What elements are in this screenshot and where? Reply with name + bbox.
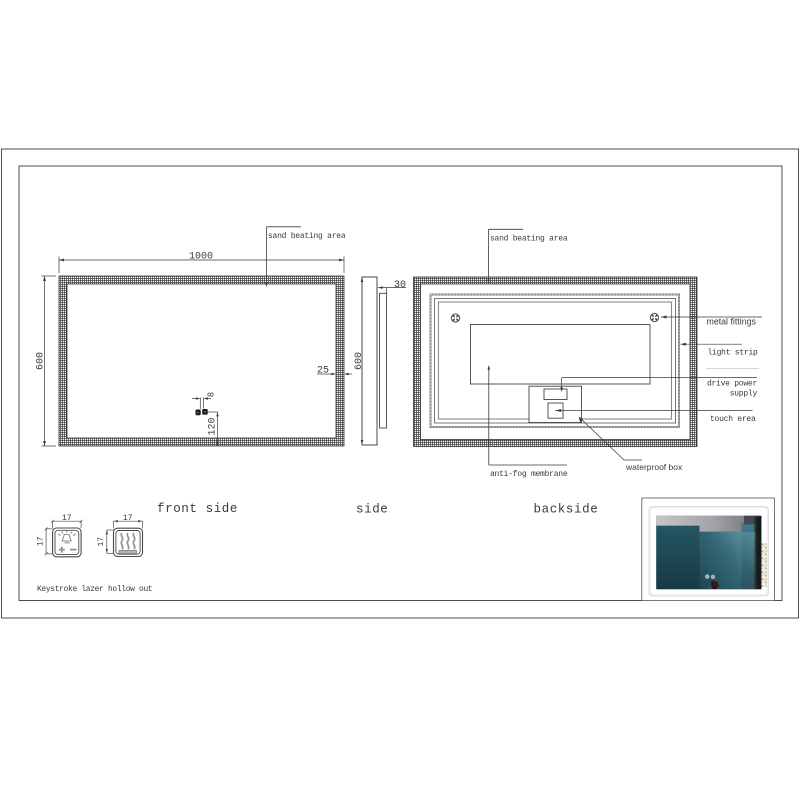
svg-text:waterproof box: waterproof box [625, 462, 683, 472]
svg-text:600: 600 [354, 352, 365, 370]
svg-text:17: 17 [37, 536, 46, 546]
svg-text:light strip: light strip [708, 349, 759, 358]
svg-text:backside: backside [534, 503, 599, 517]
svg-text:metal fittings: metal fittings [707, 317, 757, 327]
svg-text:sand beating area: sand beating area [268, 232, 346, 241]
svg-text:front side: front side [157, 502, 238, 516]
svg-text:drive power: drive power [707, 379, 758, 388]
svg-text:1000: 1000 [189, 252, 213, 263]
svg-text:600: 600 [36, 352, 47, 370]
svg-text:anti-fog membrane: anti-fog membrane [490, 470, 568, 479]
svg-text:17: 17 [123, 514, 133, 523]
svg-text:Keystroke lazer hollow out: Keystroke lazer hollow out [37, 585, 152, 594]
svg-text:120: 120 [208, 417, 219, 435]
svg-text:touch erea: touch erea [710, 415, 756, 424]
svg-text:sand beating area: sand beating area [490, 235, 568, 244]
svg-text:supply: supply [730, 389, 758, 398]
svg-text:8: 8 [207, 392, 217, 397]
svg-text:17: 17 [62, 514, 72, 523]
svg-text:side: side [356, 503, 388, 517]
svg-text:25: 25 [317, 366, 329, 377]
svg-text:30: 30 [394, 280, 406, 291]
svg-text:17: 17 [97, 537, 106, 547]
